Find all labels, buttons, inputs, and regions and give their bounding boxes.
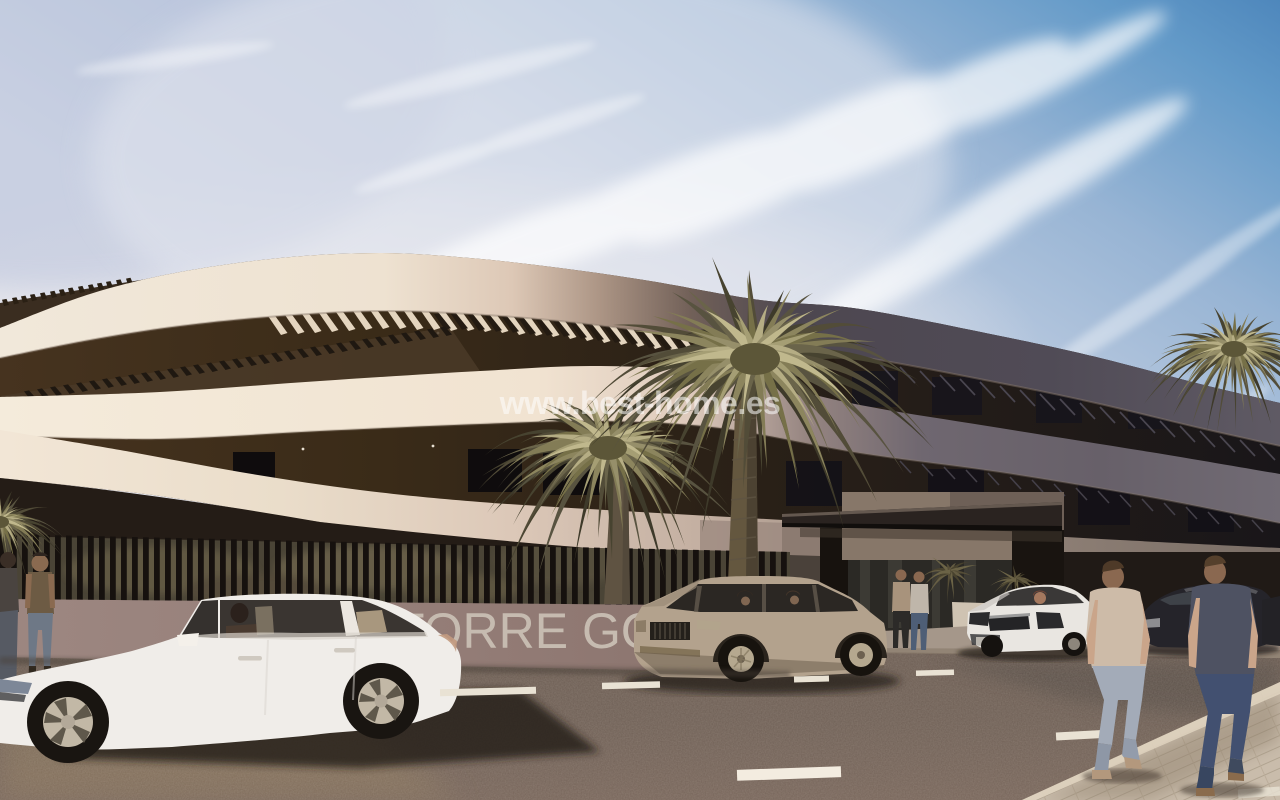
svg-text:www.best-home.es: www.best-home.es (499, 385, 781, 421)
